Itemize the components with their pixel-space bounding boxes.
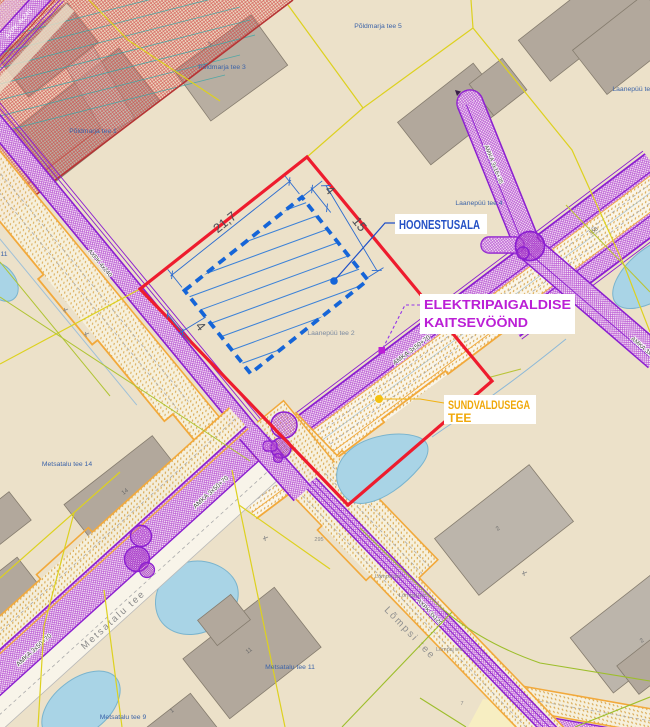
svg-text:11: 11 — [0, 251, 7, 258]
svg-text:Lõmpsi tee: Lõmpsi tee — [399, 593, 426, 599]
svg-text:Metsatalu tee 14: Metsatalu tee 14 — [42, 461, 92, 468]
svg-text:ELEKTRIPAIGALDISE: ELEKTRIPAIGALDISE — [424, 298, 571, 312]
svg-text:295: 295 — [314, 537, 323, 543]
svg-text:Laanepüü tee 6: Laanepüü tee 6 — [612, 86, 650, 93]
svg-text:Metsatalu tee 11: Metsatalu tee 11 — [265, 664, 315, 671]
svg-text:TEE: TEE — [448, 411, 471, 425]
svg-text:HOONESTUSALA: HOONESTUSALA — [399, 218, 480, 232]
svg-text:KAITSEVÖÖND: KAITSEVÖÖND — [424, 315, 528, 330]
svg-text:Põldmarja tee 5: Põldmarja tee 5 — [354, 23, 402, 30]
svg-text:Põldmarja tee 3: Põldmarja tee 3 — [198, 64, 246, 71]
svg-text:SUNDVALDUSEGA: SUNDVALDUSEGA — [448, 398, 530, 412]
svg-text:Lõmpsi tee: Lõmpsi tee — [375, 574, 402, 580]
svg-text:Laanepüü tee 2: Laanepüü tee 2 — [307, 330, 354, 337]
svg-text:Laanepüü tee 4: Laanepüü tee 4 — [455, 200, 502, 207]
svg-text:Metsatalu tee 9: Metsatalu tee 9 — [100, 714, 147, 721]
svg-text:Põldmarja tee 1: Põldmarja tee 1 — [69, 128, 117, 135]
svg-text:7: 7 — [460, 701, 463, 707]
svg-text:Lõmpsi tee: Lõmpsi tee — [436, 647, 463, 653]
